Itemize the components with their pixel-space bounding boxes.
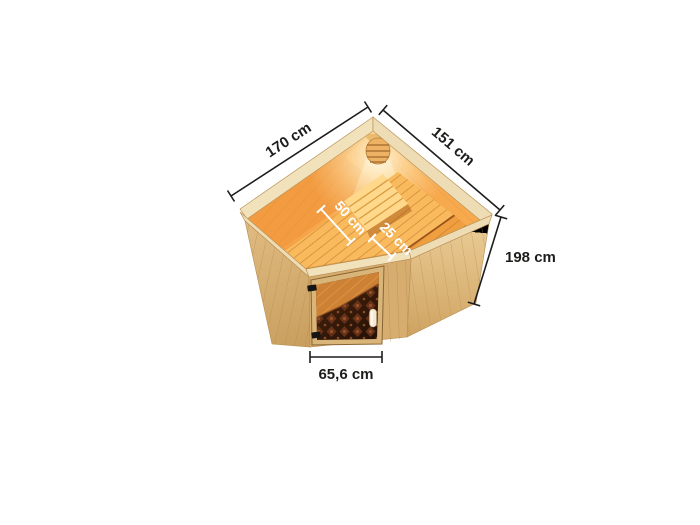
door-hinge-bottom: [311, 331, 321, 338]
door-handle: [370, 309, 377, 327]
dimension-label-170: 170 cm: [263, 119, 315, 161]
door-hinge-top: [307, 284, 317, 291]
dimension-door-width: 65,6 cm: [310, 351, 382, 383]
dimension-label-65-6: 65,6 cm: [318, 366, 373, 383]
product-image: 170 cm 151 cm 198 cm 50 cm 25 cm 65,6 cm: [0, 0, 700, 525]
sauna-dimension-diagram: 170 cm 151 cm 198 cm 50 cm 25 cm 65,6 cm: [0, 0, 700, 525]
dimension-label-151: 151 cm: [428, 124, 478, 170]
dimension-label-198: 198 cm: [505, 249, 556, 266]
